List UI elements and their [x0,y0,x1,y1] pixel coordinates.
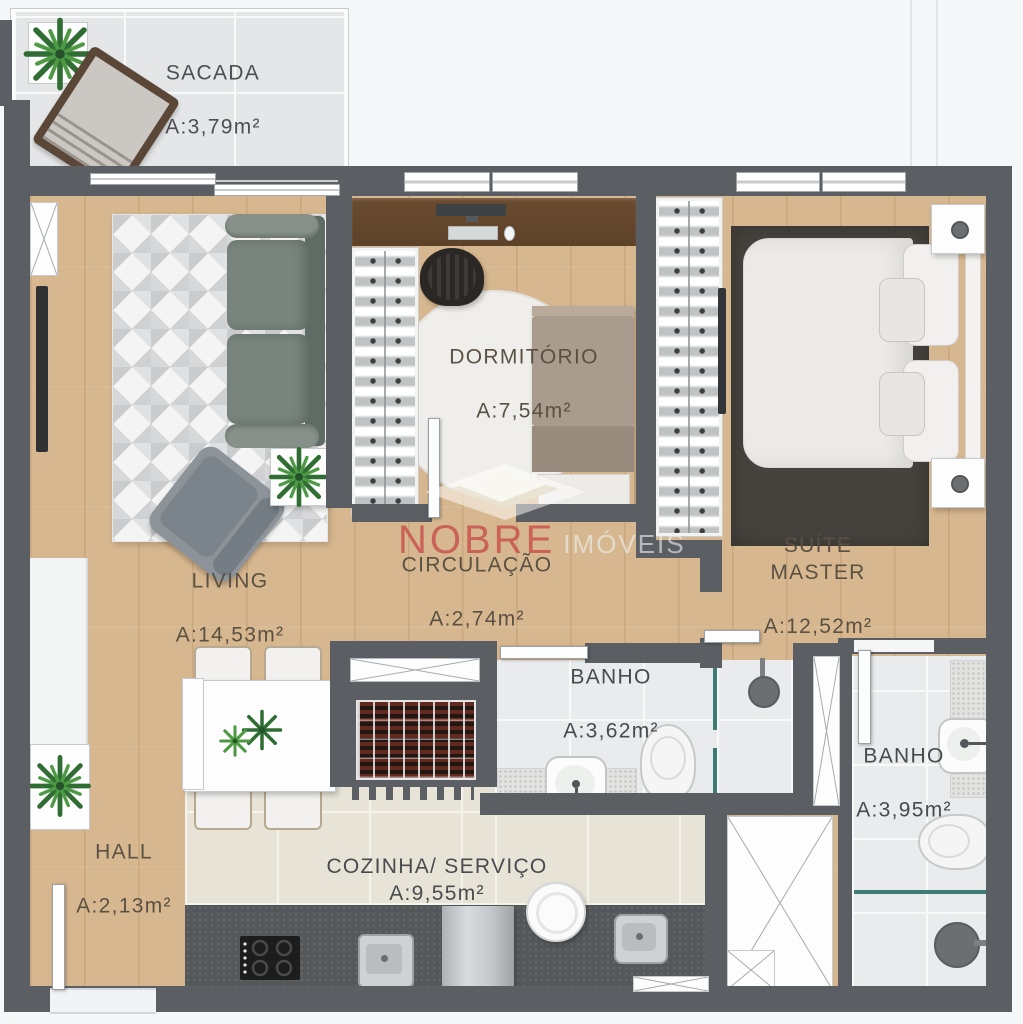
sofa-armrest [225,214,319,238]
bed-headboard [965,236,981,470]
neighbour-line [910,0,912,166]
wall-right [986,166,1012,1012]
wall-banho2-left [838,643,852,1000]
x-brace-icon [814,657,839,805]
room-name: LIVING [176,568,285,595]
wall-living-dorm [326,196,352,508]
wall-left [4,100,30,1012]
room-area: A:2,74m² [402,606,553,633]
shower-head-icon [748,676,780,708]
watermark-brand-suffix: IMÓVEIS [563,529,685,560]
room-label-living: LIVING A:14,53m² [176,541,285,676]
room-label-banho-social: BANHO A:3,62m² [563,637,659,772]
keyboard-icon [448,226,498,240]
wall-banho-bottom [480,793,838,815]
faucet-icon [636,933,643,940]
vent-grille [633,976,709,992]
grill-grate [356,700,476,780]
room-label-suite: SUÍTE MASTER A:12,52m² [758,505,878,667]
x-brace-icon [634,977,708,991]
mouse-icon [504,226,515,241]
room-label-dormitorio: DORMITÓRIO A:7,54m² [449,317,599,452]
sliding-door-panel [90,173,216,185]
dining-chair [194,788,252,830]
wall-shower-right [793,643,813,815]
wardrobe [656,198,722,536]
room-area: A:3,95m² [856,797,952,824]
dishwasher-icon [442,906,514,988]
entrance-gap [50,988,156,1014]
nightstand [931,458,985,508]
watermark-text: NOBRE IMÓVEIS [398,518,686,563]
sofa-cushion [227,240,309,330]
double-bed [743,236,981,468]
laundry-sink-icon [614,914,668,964]
lamp-icon [951,475,969,493]
window-icon [822,172,906,192]
room-label-sacada: SACADA A:3,79m² [165,33,261,168]
window-icon [404,172,490,192]
room-name: SUÍTE MASTER [758,532,878,586]
dining-chair [264,788,322,830]
room-name: COZINHA/ SERVIÇO [326,853,547,880]
grill-unit [330,641,497,787]
wall-kitchen-closet [705,795,727,988]
faucet-icon [381,955,388,962]
door-suite [704,630,760,643]
bed-pillow [879,372,925,436]
room-name: DORMITÓRIO [449,344,599,371]
room-area: A:14,53m² [176,622,285,649]
sofa [225,214,325,448]
wall-left-balcony [0,20,12,106]
tv-icon [718,288,726,414]
faucet-icon [960,739,969,748]
watermark-logo-icon [405,450,605,520]
room-area: A:3,79m² [165,114,261,141]
shaft-small [727,950,775,990]
room-name: SACADA [165,60,261,87]
grill-teeth [352,787,474,800]
door-entrance [52,884,65,990]
shower-glass [854,890,988,894]
faucet-icon [572,780,580,788]
bed-pillow [879,278,925,342]
room-area: A:7,54m² [449,398,599,425]
shower-glass [713,748,717,796]
plant-icon [218,724,252,758]
nightstand [931,204,985,254]
room-name: BANHO [856,743,952,770]
plant-icon [26,752,94,820]
monitor-stand [466,216,478,222]
monitor-icon [436,204,506,216]
lamp-icon [951,221,969,239]
wall-niche-window [30,202,58,276]
wall-recess [30,558,88,744]
neighbour-line [936,0,938,166]
x-brace-icon [31,203,57,275]
wall-dorm-wardrobe [636,196,656,546]
shaft [813,656,840,806]
watermark-brand: NOBRE [398,518,555,563]
window-icon [736,172,820,192]
grill-window [350,658,480,682]
room-area: A:12,52m² [758,613,878,640]
x-brace-icon [351,659,479,681]
sofa-cushion [227,334,309,424]
room-name: BANHO [563,664,659,691]
hall-sideboard [182,678,204,790]
kitchen-sink-icon [358,934,414,988]
bed-headboard [532,306,634,316]
room-area: A:9,55m² [326,880,547,907]
floor-plan: SACADA A:3,79m² LIVING A:14,53m² DORMITÓ… [0,0,1023,1024]
tv-icon [36,286,48,452]
plant-icon [266,444,332,510]
office-chair-ridges [428,254,476,300]
wall-circ-suite [700,540,722,592]
x-brace-icon [728,951,774,989]
room-area: A:3,62m² [563,718,659,745]
sliding-door-panel [214,184,340,196]
window-icon [492,172,578,192]
shower-glass [713,660,717,730]
room-label-hall: HALL A:2,13m² [76,812,172,947]
room-label-cozinha: COZINHA/ SERVIÇO A:9,55m² [326,853,547,907]
faucet-stem [969,742,987,745]
room-name: HALL [76,839,172,866]
room-area: A:2,13m² [76,893,172,920]
office-chair [420,248,484,306]
stove-icon [240,936,300,980]
room-label-banho-suite: BANHO A:3,95m² [856,716,952,851]
